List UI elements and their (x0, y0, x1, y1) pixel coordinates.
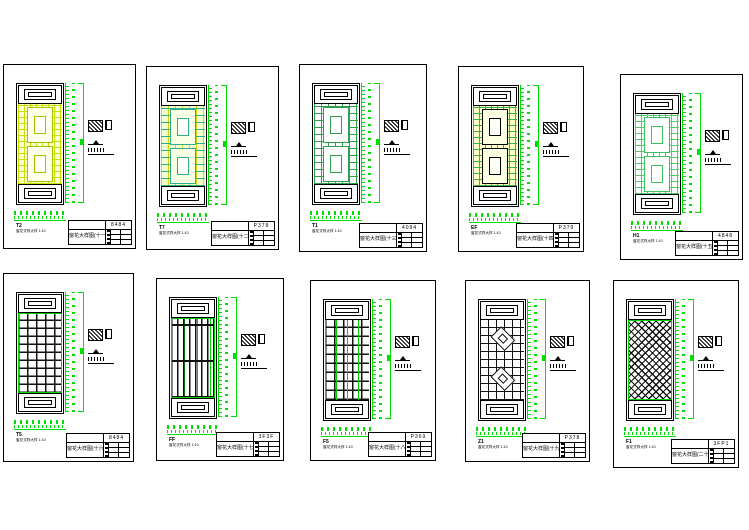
lattice-motif (323, 146, 350, 182)
overall-dimension-line (694, 93, 701, 213)
panel-top-rail (473, 87, 517, 106)
panel-label: F5 窗花式样大样 1:10 (323, 440, 364, 451)
title-block: P369 窗花大样图(十八) (368, 432, 432, 457)
panel-label: F1 窗花式样大样 1:10 (626, 440, 667, 451)
drawing-title: 窗花大样图(十八) (369, 442, 406, 456)
panel-title: 窗花式样大样 1:10 (626, 446, 656, 450)
panel-label: T2 窗花式样大样 1:10 (16, 224, 57, 235)
title-block-cell (360, 224, 397, 233)
horizontal-dimension-chain (310, 211, 362, 221)
sheet-number: P378 (249, 222, 274, 231)
drawing-sheet-6: T5 窗花式样大样 1:10 8484 窗花大样图(十六) (3, 273, 134, 462)
scale-bar (88, 148, 104, 152)
drawing-sheet-2: T7 窗花式样大样 1:10 P378 窗花大样图(十二) (146, 66, 279, 250)
panel-drawing (471, 85, 519, 207)
overall-dimension-line (687, 299, 694, 419)
title-block-cell (69, 221, 106, 230)
panel-bottom-rail (18, 184, 62, 203)
title-block: P378 窗花大样图(十九) (522, 433, 586, 458)
horizontal-dimension-chain (157, 213, 209, 223)
scale-bar (698, 364, 714, 368)
drawing-title: 窗花大样图(十六) (67, 443, 104, 457)
lattice-motif (644, 117, 671, 153)
lattice-motif (482, 109, 509, 145)
horizontal-dimension-chain (14, 211, 66, 221)
drawing-sheet-9: Z1 窗花式样大样 1:10 P378 窗花大样图(十九) (465, 280, 590, 462)
overall-dimension-line (77, 292, 84, 412)
material-legend (543, 122, 579, 157)
legend-mark-icon (567, 336, 574, 346)
drawing-sheet-3: T1 窗花式样大样 1:10 4094 窗花大样图(十三) (299, 64, 427, 252)
scale-bar (395, 364, 411, 368)
drawing-sheet-7: FF 窗花式样大样 1:10 3F3F 窗花大样图(十七) (156, 278, 284, 461)
title-block: 8484 窗花大样图(十一) (68, 220, 132, 245)
title-block: 4848 窗花大样图(十五) (675, 231, 739, 256)
panel-bottom-rail (314, 184, 358, 203)
panel-label: T1 窗花式样大样 1:10 (312, 224, 353, 235)
panel-label: EF 窗花式样大样 1:10 (471, 226, 512, 237)
hatch-swatch-icon (384, 120, 399, 132)
legend-mark-icon (258, 334, 265, 344)
title-block: 4094 窗花大样图(十三) (359, 223, 423, 248)
lattice-pattern (161, 106, 205, 186)
scale-bar-line (698, 370, 724, 371)
panel-bottom-rail (628, 400, 672, 419)
panel-title: 窗花式样大样 1:10 (478, 446, 508, 450)
section-mark-icon (88, 139, 103, 145)
lattice-motif (482, 148, 509, 184)
lattice-motif (490, 326, 514, 350)
hatch-swatch-icon (705, 130, 720, 142)
title-block-cell (672, 440, 709, 449)
panel-title: 窗花式样大样 1:10 (633, 240, 663, 244)
panel-label: T5 窗花式样大样 1:10 (16, 433, 57, 444)
legend-mark-icon (105, 329, 112, 339)
lattice-pattern (635, 114, 679, 194)
material-legend (395, 336, 431, 371)
scale-bar (384, 148, 400, 152)
title-block-grid (111, 230, 131, 244)
panel-bottom-rail (171, 398, 215, 417)
lattice-motif (27, 146, 54, 182)
sheet-number: 4094 (397, 224, 422, 233)
vertical-dimension-chain (682, 93, 692, 213)
panel-drawing (478, 299, 526, 421)
overall-dimension-line (220, 85, 227, 205)
lattice-pattern (480, 320, 524, 400)
section-mark-icon (698, 355, 713, 361)
hatch-swatch-icon (88, 120, 103, 132)
drawing-sheet-10: F1 窗花式样大样 1:10 3FP1 窗花大样图(二十) (613, 280, 739, 468)
panel-top-rail (635, 95, 679, 114)
title-block: 8484 窗花大样图(十六) (66, 433, 130, 458)
material-legend (550, 336, 586, 371)
scale-bar-line (705, 164, 731, 165)
drawing-sheet-5: H1 窗花式样大样 1:10 4848 窗花大样图(十五) (620, 74, 743, 260)
panel-drawing (159, 85, 207, 207)
legend-mark-icon (401, 120, 408, 130)
material-legend (241, 334, 277, 369)
lattice-motif (170, 109, 197, 145)
vertical-dimension-chain (208, 85, 218, 205)
vertical-dimension-chain (675, 299, 685, 419)
overall-dimension-line (373, 83, 380, 203)
scale-bar (550, 364, 566, 368)
title-block-grid (254, 231, 274, 245)
title-block-grid (714, 449, 734, 463)
horizontal-dimension-chain (624, 427, 676, 437)
cad-sheet-set: T2 窗花式样大样 1:10 8484 窗花大样图(十一) T7 窗花 (0, 0, 749, 530)
panel-drawing (633, 93, 681, 215)
panel-bottom-rail (473, 186, 517, 205)
panel-top-rail (628, 301, 672, 320)
sheet-number: 8484 (104, 434, 129, 443)
material-legend (705, 130, 741, 165)
title-block-grid (565, 443, 585, 457)
title-block-grid (109, 443, 129, 457)
overall-dimension-line (77, 83, 84, 203)
material-legend (384, 120, 420, 155)
legend-mark-icon (248, 122, 255, 132)
drawing-title: 窗花大样图(十三) (360, 233, 397, 247)
panel-top-rail (325, 301, 369, 320)
panel-drawing (16, 292, 64, 414)
panel-title: 窗花式样大样 1:10 (323, 446, 353, 450)
horizontal-dimension-chain (476, 427, 528, 437)
panel-drawing (169, 297, 217, 419)
panel-label: H1 窗花式样大样 1:10 (633, 234, 674, 245)
lattice-motif (644, 156, 671, 192)
panel-drawing (323, 299, 371, 421)
scale-bar-line (395, 370, 421, 371)
panel-top-rail (480, 301, 524, 320)
drawing-title: 窗花大样图(十一) (69, 230, 106, 244)
drawing-title: 窗花大样图(十四) (517, 233, 554, 247)
overall-dimension-line (230, 297, 237, 417)
scale-bar-line (550, 370, 576, 371)
panel-top-rail (161, 87, 205, 106)
lattice-pattern (171, 318, 215, 398)
drawing-sheet-1: T2 窗花式样大样 1:10 8484 窗花大样图(十一) (3, 64, 136, 249)
panel-title: 窗花式样大样 1:10 (16, 230, 46, 234)
title-block-grid (411, 442, 431, 456)
section-mark-icon (543, 141, 558, 147)
vertical-dimension-chain (527, 299, 537, 419)
title-block-cell (517, 224, 554, 233)
scale-bar-line (88, 154, 114, 155)
section-mark-icon (550, 355, 565, 361)
scale-bar (231, 150, 247, 154)
scale-bar-line (543, 156, 569, 157)
legend-mark-icon (715, 336, 722, 346)
material-legend (231, 122, 267, 157)
lattice-pattern (18, 104, 62, 184)
hatch-swatch-icon (543, 122, 558, 134)
hatch-swatch-icon (550, 336, 565, 348)
section-mark-icon (395, 355, 410, 361)
title-block: P378 窗花大样图(十二) (211, 221, 275, 246)
material-legend (698, 336, 734, 371)
hatch-swatch-icon (395, 336, 410, 348)
horizontal-dimension-chain (14, 420, 66, 430)
hatch-swatch-icon (698, 336, 713, 348)
panel-drawing (16, 83, 64, 205)
section-mark-icon (241, 353, 256, 359)
scale-bar-line (231, 156, 257, 157)
panel-top-rail (314, 85, 358, 104)
sheet-number: 8484 (106, 221, 131, 230)
section-mark-icon (384, 139, 399, 145)
vertical-dimension-chain (361, 83, 371, 203)
panel-bottom-rail (480, 400, 524, 419)
overall-dimension-line (384, 299, 391, 419)
sheet-number: P379 (554, 224, 579, 233)
scale-bar-line (241, 368, 267, 369)
panel-top-rail (18, 294, 62, 313)
sheet-number: 3FP1 (709, 440, 734, 449)
title-block: 3FP1 窗花大样图(二十) (671, 439, 735, 464)
drawing-title: 窗花大样图(十二) (212, 231, 249, 245)
panel-bottom-rail (635, 194, 679, 213)
title-block: 3F3F 窗花大样图(十七) (216, 432, 280, 457)
title-block: P379 窗花大样图(十四) (516, 223, 580, 248)
lattice-pattern (18, 313, 62, 393)
horizontal-dimension-chain (631, 221, 683, 231)
drawing-title: 窗花大样图(十五) (676, 241, 713, 255)
lattice-motif (27, 107, 54, 143)
panel-drawing (312, 83, 360, 205)
drawing-sheet-8: F5 窗花式样大样 1:10 P369 窗花大样图(十八) (310, 280, 436, 461)
title-block-grid (559, 233, 579, 247)
title-block-cell (212, 222, 249, 231)
scale-bar-line (384, 154, 410, 155)
panel-title: 窗花式样大样 1:10 (169, 444, 199, 448)
section-mark-icon (88, 348, 103, 354)
lattice-pattern (325, 320, 369, 400)
overall-dimension-line (532, 85, 539, 205)
vertical-dimension-chain (65, 292, 75, 412)
material-legend (88, 329, 124, 364)
title-block-cell (67, 434, 104, 443)
lattice-motif (490, 366, 514, 390)
panel-title: 窗花式样大样 1:10 (16, 439, 46, 443)
panel-bottom-rail (18, 393, 62, 412)
legend-mark-icon (105, 120, 112, 130)
panel-bottom-rail (325, 400, 369, 419)
overall-dimension-line (539, 299, 546, 419)
scale-bar (241, 362, 257, 366)
panel-title: 窗花式样大样 1:10 (159, 232, 189, 236)
lattice-motif (323, 107, 350, 143)
vertical-dimension-chain (372, 299, 382, 419)
horizontal-dimension-chain (469, 213, 521, 223)
panel-title: 窗花式样大样 1:10 (312, 230, 342, 234)
panel-label: Z1 窗花式样大样 1:10 (478, 440, 519, 451)
sheet-number: 3F3F (254, 433, 279, 442)
legend-mark-icon (412, 336, 419, 346)
vertical-dimension-chain (65, 83, 75, 203)
hatch-swatch-icon (231, 122, 246, 134)
panel-bottom-rail (161, 186, 205, 205)
hatch-swatch-icon (241, 334, 256, 346)
title-block-grid (259, 442, 279, 456)
scale-bar-line (88, 363, 114, 364)
hatch-swatch-icon (88, 329, 103, 341)
lattice-motif (170, 148, 197, 184)
panel-title: 窗花式样大样 1:10 (471, 232, 501, 236)
drawing-title: 窗花大样图(十九) (523, 443, 560, 457)
panel-top-rail (18, 85, 62, 104)
panel-label: FF 窗花式样大样 1:10 (169, 438, 210, 449)
vertical-dimension-chain (520, 85, 530, 205)
title-block-grid (718, 241, 738, 255)
scale-bar (543, 150, 559, 154)
title-block-grid (402, 233, 422, 247)
sheet-number: P369 (406, 433, 431, 442)
panel-drawing (626, 299, 674, 421)
section-mark-icon (231, 141, 246, 147)
legend-mark-icon (722, 130, 729, 140)
sheet-number: P378 (560, 434, 585, 443)
lattice-pattern (314, 104, 358, 184)
panel-top-rail (171, 299, 215, 318)
lattice-pattern (628, 320, 672, 400)
panel-label: T7 窗花式样大样 1:10 (159, 226, 200, 237)
legend-mark-icon (560, 122, 567, 132)
title-block-cell (217, 433, 254, 442)
title-block-cell (676, 232, 713, 241)
drawing-title: 窗花大样图(二十) (672, 449, 709, 463)
horizontal-dimension-chain (321, 427, 373, 437)
scale-bar (705, 158, 721, 162)
lattice-pattern (473, 106, 517, 186)
drawing-sheet-4: EF 窗花式样大样 1:10 P379 窗花大样图(十四) (458, 66, 584, 252)
drawing-title: 窗花大样图(十七) (217, 442, 254, 456)
title-block-cell (523, 434, 560, 443)
material-legend (88, 120, 124, 155)
sheet-number: 4848 (713, 232, 738, 241)
section-mark-icon (705, 149, 720, 155)
title-block-cell (369, 433, 406, 442)
scale-bar (88, 357, 104, 361)
horizontal-dimension-chain (167, 425, 219, 435)
vertical-dimension-chain (218, 297, 228, 417)
